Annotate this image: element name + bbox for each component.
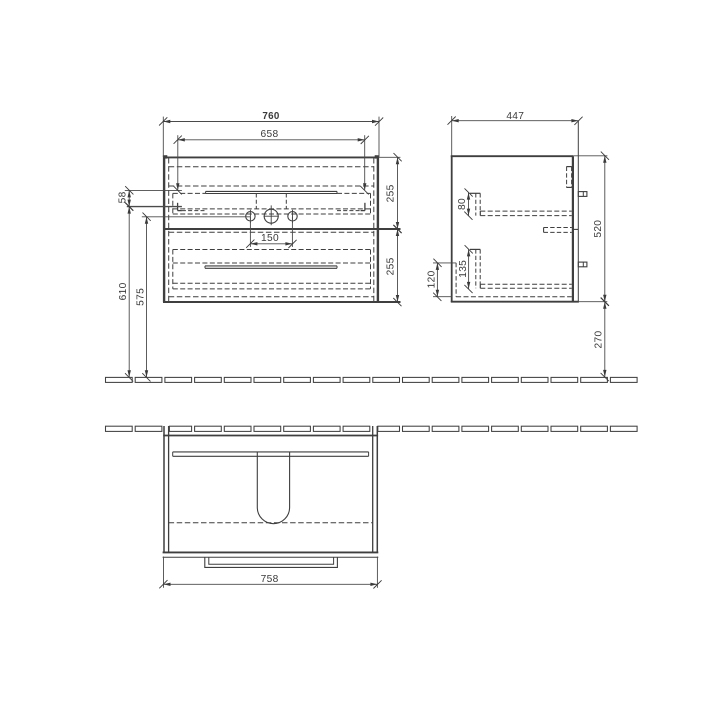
svg-text:80: 80 bbox=[457, 198, 468, 210]
svg-text:255: 255 bbox=[386, 257, 397, 275]
svg-text:150: 150 bbox=[261, 233, 279, 244]
svg-text:610: 610 bbox=[118, 282, 129, 300]
svg-text:58: 58 bbox=[118, 191, 129, 203]
svg-text:658: 658 bbox=[261, 129, 279, 140]
svg-text:575: 575 bbox=[136, 288, 147, 306]
svg-text:447: 447 bbox=[506, 111, 524, 122]
svg-text:120: 120 bbox=[427, 270, 438, 288]
svg-text:255: 255 bbox=[386, 184, 397, 202]
svg-text:758: 758 bbox=[261, 574, 279, 585]
svg-text:760: 760 bbox=[262, 111, 279, 122]
svg-text:270: 270 bbox=[593, 331, 604, 349]
svg-text:520: 520 bbox=[593, 220, 604, 238]
svg-text:135: 135 bbox=[458, 260, 469, 278]
